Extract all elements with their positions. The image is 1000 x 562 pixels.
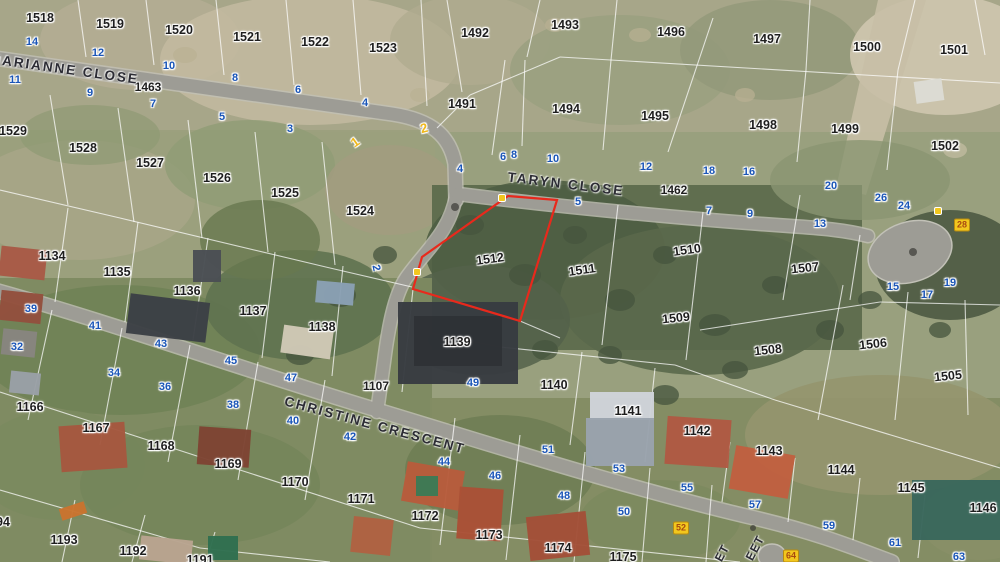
parcel-number-label: 1509 <box>661 310 690 327</box>
street-number-label: 38 <box>227 399 239 411</box>
parcel-number-label: 1166 <box>16 400 43 414</box>
parcel-number-label: 1497 <box>753 32 781 46</box>
parcel-number-label: 94 <box>0 515 10 529</box>
street-number-label: 34 <box>108 367 120 379</box>
parcel-number-label: 1499 <box>831 122 859 136</box>
parcel-number-label: 1498 <box>749 118 777 132</box>
road-parcel-number-label: 1462 <box>661 183 688 197</box>
street-number-label: 44 <box>438 456 450 468</box>
parcel-number-label: 1512 <box>475 250 504 268</box>
parcel-number-label: 1136 <box>173 284 200 298</box>
aerial-cadastral-map: 1518151915201521152215231492149314961497… <box>0 0 1000 562</box>
street-number-label: 50 <box>618 506 630 518</box>
street-number-label: 42 <box>344 431 356 443</box>
parcel-number-label: 1192 <box>119 544 146 558</box>
road-parcel-number-label: 1463 <box>135 80 162 94</box>
street-number-label: 14 <box>26 36 38 48</box>
street-number-label: 36 <box>159 381 171 393</box>
street-number-label: 24 <box>898 200 910 212</box>
parcel-number-label: 1174 <box>544 541 571 555</box>
map-labels-layer: 1518151915201521152215231492149314961497… <box>0 0 1000 562</box>
parcel-number-label: 1144 <box>827 463 854 477</box>
parcel-number-label: 1510 <box>672 241 701 259</box>
parcel-number-label: 1146 <box>969 501 996 515</box>
parcel-number-label: 1524 <box>346 204 374 218</box>
street-number-label: 19 <box>944 277 956 289</box>
parcel-number-label: 1143 <box>755 444 782 458</box>
parcel-number-label: 1172 <box>411 509 438 523</box>
parcel-number-label: 1506 <box>858 336 887 353</box>
street-number-label: 49 <box>467 377 479 389</box>
parcel-number-label: 1145 <box>897 481 924 495</box>
street-number-label: 47 <box>285 372 297 384</box>
street-number-label: 15 <box>887 281 899 293</box>
street-number-label: 5 <box>575 196 581 208</box>
street-name-label: ET <box>712 542 733 562</box>
parcel-number-label: 1520 <box>165 23 193 37</box>
parcel-number-label: 1142 <box>683 424 710 438</box>
street-number-label: 63 <box>953 551 965 562</box>
parcel-number-label: 1501 <box>940 43 968 57</box>
yellow-marker-dot <box>934 207 942 215</box>
street-number-label: 20 <box>825 180 837 192</box>
parcel-number-label: 1526 <box>203 171 231 185</box>
street-number-label: 45 <box>225 355 237 367</box>
street-number-label: 9 <box>747 208 753 220</box>
parcel-number-label: 1140 <box>540 378 567 392</box>
yellow-marker-badge: 52 <box>673 522 689 535</box>
street-number-label: 46 <box>489 470 501 482</box>
street-number-label: 6 <box>295 84 301 96</box>
parcel-number-label: 1507 <box>790 260 819 277</box>
parcel-number-label: 1171 <box>347 492 374 506</box>
parcel-number-label: 1508 <box>753 342 782 359</box>
parcel-number-label: 1492 <box>461 26 489 40</box>
parcel-number-label: 1518 <box>26 11 54 25</box>
street-name-label: TARYN CLOSE <box>507 169 625 198</box>
parcel-number-label: 1175 <box>609 550 636 562</box>
parcel-number-label: 1500 <box>853 40 881 54</box>
parcel-number-label: 1528 <box>69 141 97 155</box>
street-number-label: 10 <box>547 153 559 165</box>
street-number-label: 3 <box>287 123 293 135</box>
street-number-label: 11 <box>9 74 21 86</box>
street-number-label: 16 <box>743 166 755 178</box>
street-number-label: 18 <box>703 165 715 177</box>
parcel-number-label: 1135 <box>103 265 130 279</box>
parcel-number-label: 1525 <box>271 186 299 200</box>
street-number-label: 12 <box>92 47 104 59</box>
street-number-label: 53 <box>613 463 625 475</box>
parcel-number-label: 1193 <box>50 533 77 547</box>
parcel-number-label: 1502 <box>931 139 959 153</box>
parcel-number-label: 1170 <box>281 475 308 489</box>
street-number-label: 7 <box>706 205 712 217</box>
parcel-number-label: 1521 <box>233 30 261 44</box>
street-number-label: 48 <box>558 490 570 502</box>
street-number-label: 12 <box>640 161 652 173</box>
street-number-label: 57 <box>749 499 761 511</box>
parcel-number-label: 1191 <box>186 553 213 562</box>
parcel-number-label: 1167 <box>82 421 109 435</box>
street-number-label: 2 <box>369 264 382 272</box>
parcel-number-label: 1137 <box>239 304 266 318</box>
street-name-label: EET <box>743 533 768 562</box>
parcel-number-label: 1529 <box>0 124 27 138</box>
parcel-number-label: 1523 <box>369 41 397 55</box>
street-number-label: 6 <box>500 151 506 163</box>
street-number-label: 8 <box>511 149 517 161</box>
street-number-label: 32 <box>11 341 23 353</box>
parcel-number-label: 1519 <box>96 17 124 31</box>
street-number-label: 4 <box>362 97 368 109</box>
street-number-label: 59 <box>823 520 835 532</box>
street-number-label: 40 <box>287 415 299 427</box>
street-name-label: CHRISTINE CRESCENT <box>283 394 467 457</box>
street-number-label: 51 <box>542 444 554 456</box>
street-number-label: 41 <box>89 320 101 332</box>
yellow-marker-badge: 64 <box>783 550 799 562</box>
parcel-number-label: 1141 <box>614 404 641 418</box>
yellow-marker-dot <box>498 194 506 202</box>
parcel-number-label: 1511 <box>568 261 597 279</box>
parcel-number-label: 1173 <box>475 528 502 542</box>
street-number-label: 7 <box>150 98 156 110</box>
street-number-label: 17 <box>921 289 933 301</box>
parcel-number-label: 1496 <box>657 25 685 39</box>
yellow-marker-badge: 28 <box>954 219 970 232</box>
yellow-marker-dot <box>413 268 421 276</box>
street-number-label: 4 <box>457 163 463 175</box>
parcel-number-label: 1493 <box>551 18 579 32</box>
yellow-marker-number: 2 <box>419 120 430 136</box>
street-number-label: 55 <box>681 482 693 494</box>
parcel-number-label: 1491 <box>448 97 476 111</box>
yellow-marker-number: 1 <box>348 134 363 150</box>
street-number-label: 10 <box>163 60 175 72</box>
parcel-number-label: 1134 <box>38 249 65 263</box>
street-number-label: 61 <box>889 537 901 549</box>
parcel-number-label: 1138 <box>308 320 335 334</box>
street-number-label: 39 <box>25 303 37 315</box>
street-number-label: 8 <box>232 72 238 84</box>
street-number-label: 5 <box>219 111 225 123</box>
parcel-number-label: 1527 <box>136 156 164 170</box>
parcel-number-label: 1522 <box>301 35 329 49</box>
street-number-label: 9 <box>87 87 93 99</box>
parcel-number-label: 1495 <box>641 109 669 123</box>
parcel-number-label: 1505 <box>933 368 962 385</box>
street-number-label: 43 <box>155 338 167 350</box>
road-parcel-number-label: 1107 <box>363 379 389 393</box>
street-number-label: 26 <box>875 192 887 204</box>
parcel-number-label: 1139 <box>443 335 470 349</box>
parcel-number-label: 1168 <box>147 439 174 453</box>
street-number-label: 13 <box>814 218 826 230</box>
parcel-number-label: 1169 <box>214 457 241 471</box>
parcel-number-label: 1494 <box>552 102 580 116</box>
